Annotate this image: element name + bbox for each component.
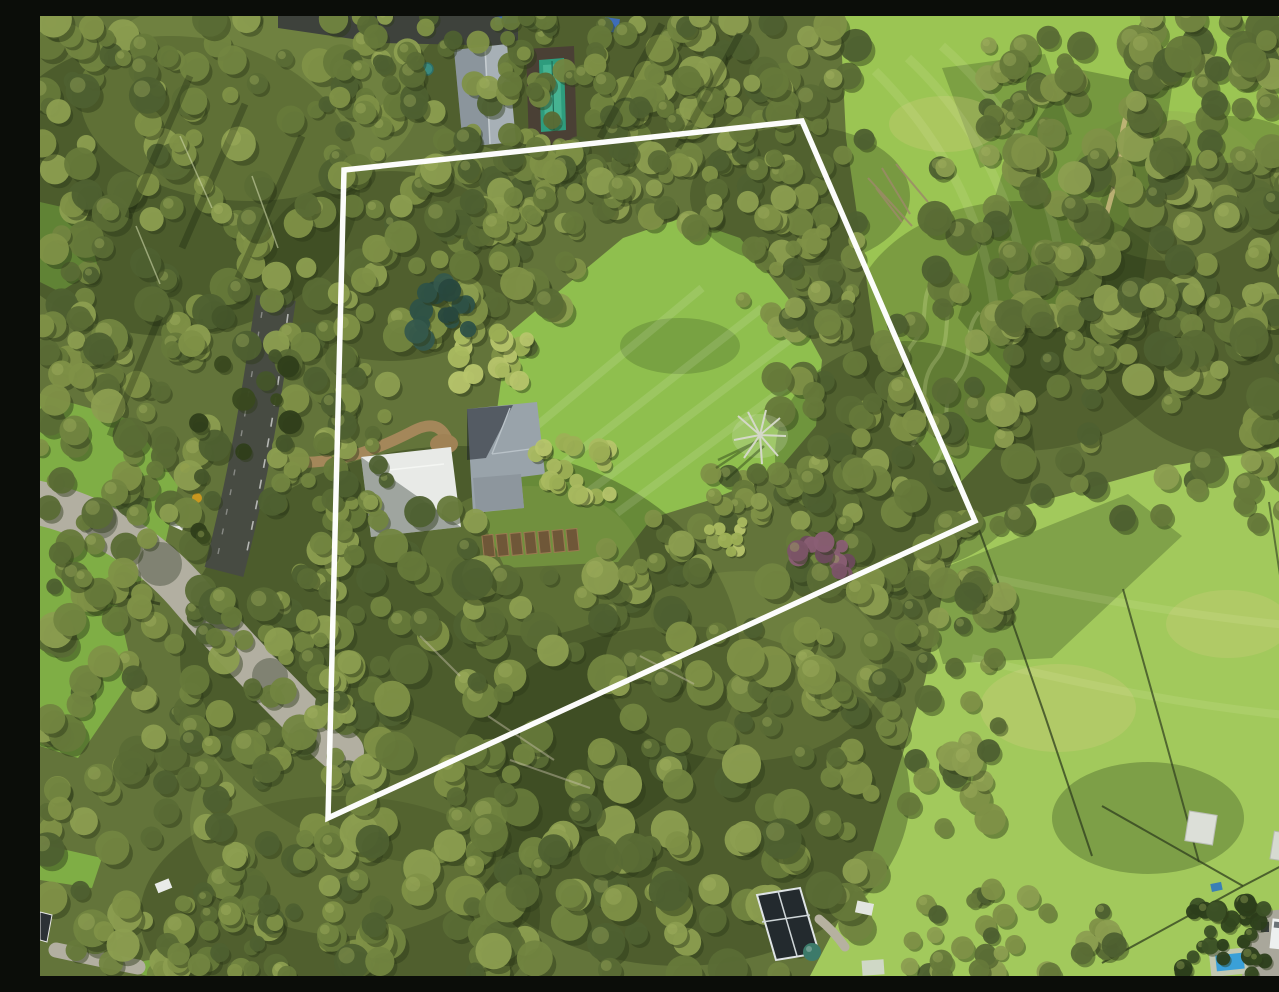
trees-bottom-midright-highlight bbox=[905, 601, 913, 609]
trees-bottom-left-corner bbox=[285, 903, 302, 920]
trees-interior-left-strip-highlight bbox=[324, 395, 334, 405]
trees-road-overhang bbox=[214, 356, 231, 373]
trees-bottom-midright bbox=[868, 668, 898, 698]
trees-bottom-right bbox=[904, 932, 922, 950]
trees-right-band-upper bbox=[1115, 176, 1144, 205]
trees-midright-shrubs bbox=[807, 435, 829, 457]
trees-top-right-corner bbox=[1149, 138, 1186, 175]
trees-right-band-lower bbox=[1241, 450, 1262, 471]
trees-interior-topband bbox=[566, 183, 584, 201]
trees-left-mid-west bbox=[126, 504, 147, 525]
trees-right-band-upper-highlight bbox=[981, 147, 991, 157]
trees-left-top-highlight bbox=[214, 205, 223, 214]
garden-bed bbox=[538, 530, 551, 553]
trees-bottom-forest-highlight bbox=[667, 924, 678, 935]
trees-road-overhang bbox=[196, 529, 211, 544]
trees-bottom-midright bbox=[895, 620, 919, 644]
trees-top-right-corner bbox=[1201, 90, 1228, 117]
trees-bottom-forest bbox=[665, 831, 689, 855]
trees-right-band-upper bbox=[1035, 243, 1054, 262]
trees-bottom-forest bbox=[517, 940, 553, 976]
trees-interior-topband-highlight bbox=[536, 189, 547, 200]
trees-midright-shrubs bbox=[888, 377, 914, 403]
trees-bottom-forest-highlight bbox=[812, 564, 829, 581]
hedge-bottom-right bbox=[1187, 950, 1200, 963]
trees-bottom-forest-west bbox=[463, 509, 488, 534]
trees-midright-shrubs bbox=[802, 397, 824, 419]
hedge-bottom-right-highlight bbox=[1251, 954, 1257, 960]
trees-bottom-midright-highlight bbox=[819, 813, 831, 825]
lawn-round-tree bbox=[751, 493, 768, 510]
trees-right-band-upper-highlight bbox=[1090, 150, 1099, 159]
trees-right-band-lower-highlight bbox=[1237, 475, 1250, 488]
hedge-bottom-right bbox=[1217, 939, 1229, 951]
trees-right-band-upper bbox=[1019, 176, 1048, 205]
lime-trees-by-house bbox=[535, 439, 552, 456]
trees-midright-shrubs-highlight bbox=[839, 517, 846, 524]
trees-bottom-midright bbox=[954, 582, 983, 611]
trees-left-mid-west bbox=[49, 542, 72, 565]
trees-left-top bbox=[247, 73, 268, 94]
hedge-bottom-right bbox=[1206, 902, 1226, 922]
trees-left-bottom-highlight bbox=[183, 732, 194, 743]
trees-road-light-overhang bbox=[304, 705, 328, 729]
trees-bottom-forest-highlight bbox=[592, 927, 609, 944]
trees-left-bottom bbox=[296, 830, 314, 848]
trees-interior-topband bbox=[648, 150, 670, 172]
trees-top-right-strip bbox=[666, 113, 683, 130]
trees-road-overhang-highlight bbox=[198, 531, 205, 538]
trees-midright-shrubs bbox=[762, 362, 792, 392]
trees-bottom-midright-highlight bbox=[918, 654, 927, 663]
trees-right-band-lower bbox=[1040, 352, 1059, 371]
trees-top-right-corner bbox=[1232, 98, 1253, 119]
trees-left-bottom bbox=[252, 754, 281, 783]
trees-interior-topband bbox=[608, 175, 633, 200]
trees-bottom-forest-west bbox=[356, 825, 390, 859]
trees-left-top bbox=[296, 258, 316, 278]
trees-interior-topleft bbox=[365, 200, 384, 219]
trees-left-top bbox=[260, 288, 284, 312]
trees-bottom-forest bbox=[452, 559, 493, 600]
trees-left-mid-west bbox=[68, 363, 94, 389]
banana-plants bbox=[726, 546, 737, 557]
trees-bottom-right-highlight bbox=[933, 952, 944, 963]
trees-interior-topleft bbox=[489, 252, 508, 271]
trees-top-right-strip bbox=[672, 66, 701, 95]
trees-left-mid-west bbox=[82, 497, 114, 529]
trees-left-bottom bbox=[107, 929, 140, 962]
trees-right-band-lower bbox=[1003, 344, 1024, 365]
trees-right-band-upper bbox=[1058, 161, 1092, 195]
trees-left-top bbox=[101, 203, 119, 221]
trees-left-bottom-highlight bbox=[167, 916, 181, 930]
trees-bottom-forest-highlight bbox=[605, 888, 622, 905]
trees-left-bottom bbox=[113, 751, 147, 785]
trees-bottom-forest-highlight bbox=[795, 747, 805, 757]
trees-bottom-forest bbox=[506, 874, 540, 908]
trees-midright-shrubs bbox=[842, 458, 873, 489]
trees-midright-shrubs-highlight bbox=[802, 471, 814, 483]
trees-top-clump bbox=[1054, 62, 1083, 91]
trees-bottom-midright-highlight bbox=[956, 619, 964, 627]
trees-bottom-left-corner bbox=[199, 921, 219, 941]
aerial-photo-canvas bbox=[40, 16, 1279, 976]
trees-bottom-midright bbox=[990, 717, 1007, 734]
trees-left-mid-east bbox=[301, 473, 316, 488]
trees-bottom-forest bbox=[797, 656, 836, 695]
trees-top-mid bbox=[444, 31, 463, 50]
trees-bottom-forest-mid bbox=[633, 559, 648, 574]
trees-top-mid-highlight bbox=[404, 94, 417, 107]
trees-left-top bbox=[129, 77, 166, 114]
trees-right-band-lower bbox=[1186, 479, 1207, 500]
trees-top-mid bbox=[370, 147, 385, 162]
trees-left-bottom bbox=[180, 730, 204, 754]
trees-left-bottom bbox=[112, 890, 140, 918]
trees-bottom-forest-west-highlight bbox=[406, 877, 421, 892]
trees-left-mid-east bbox=[303, 367, 328, 392]
trees-right-band-lower-highlight bbox=[1008, 507, 1021, 520]
trees-bottom-forest-highlight bbox=[534, 859, 543, 868]
trees-left-bottom bbox=[122, 665, 146, 689]
trees-bottom-midright-highlight bbox=[849, 580, 861, 592]
trees-bottom-forest-highlight bbox=[601, 960, 612, 971]
trees-bottom-forest bbox=[569, 801, 590, 822]
trees-bottom-forest-west bbox=[389, 645, 429, 685]
lime-trees-by-house bbox=[589, 442, 610, 463]
trees-left-mid-west bbox=[137, 528, 158, 549]
trees-interior-left-strip bbox=[375, 372, 400, 397]
trees-interior-left-strip bbox=[365, 438, 379, 452]
trees-bottom-midright bbox=[903, 599, 921, 617]
trees-bottom-forest bbox=[759, 715, 781, 737]
trees-interior-right-band bbox=[769, 262, 783, 276]
garden-bed bbox=[510, 532, 523, 555]
trees-bottom-left-corner bbox=[218, 902, 241, 925]
trees-top-right-strip-highlight bbox=[668, 115, 676, 123]
trees-top-clump bbox=[1037, 26, 1060, 49]
trees-interior-topband-highlight bbox=[612, 178, 623, 189]
trees-left-top-highlight bbox=[94, 238, 104, 248]
trees-bottom-right bbox=[1102, 932, 1127, 957]
trees-interior-right-band-highlight bbox=[749, 161, 759, 171]
trees-right-band-upper bbox=[971, 222, 992, 243]
banana-plants-highlight bbox=[720, 534, 727, 541]
trees-interior-right-band bbox=[736, 292, 751, 307]
trees-road-overhang bbox=[189, 413, 208, 432]
trees-left-top bbox=[218, 45, 247, 74]
trees-bottom-forest-highlight bbox=[766, 823, 784, 841]
trees-right-band-upper bbox=[978, 145, 999, 166]
trees-interior-left-strip bbox=[369, 455, 388, 474]
trees-top-right-strip-highlight bbox=[798, 88, 813, 103]
trees-bottom-forest bbox=[579, 836, 619, 876]
trees-interior-left-strip-highlight bbox=[367, 439, 374, 446]
trees-left-mid-east bbox=[271, 473, 290, 492]
trees-top-right-strip-highlight bbox=[826, 71, 835, 80]
trees-top-right-corner-highlight bbox=[1197, 77, 1208, 88]
trees-top-right-corner bbox=[1204, 56, 1229, 81]
trees-right-band-upper bbox=[1062, 195, 1087, 220]
trees-bottom-forest-west bbox=[397, 551, 427, 581]
trees-bottom-forest-highlight bbox=[702, 877, 716, 891]
trees-left-bottom bbox=[53, 603, 86, 636]
trees-bottom-forest-mid-highlight bbox=[649, 555, 658, 564]
trees-top-right-strip bbox=[758, 67, 789, 98]
trees-bottom-forest bbox=[588, 738, 615, 765]
trees-top-right-corner-highlight bbox=[1138, 65, 1153, 80]
trees-bottom-forest bbox=[464, 856, 484, 876]
trees-bottom-forest-west bbox=[356, 563, 386, 593]
trees-top-mid-highlight bbox=[355, 103, 366, 114]
trees-top-right-strip bbox=[787, 45, 808, 66]
trees-bottom-forest-west bbox=[370, 656, 390, 676]
trees-top-right-corner bbox=[1256, 30, 1277, 51]
trees-left-bottom-highlight bbox=[203, 908, 211, 916]
trees-right-band-upper bbox=[1165, 245, 1196, 276]
trees-midright-shrubs bbox=[905, 570, 931, 596]
trees-interior-topband-highlight bbox=[486, 216, 497, 227]
trees-bottom-left-corner bbox=[243, 896, 261, 914]
trees-interior-topband bbox=[707, 194, 723, 210]
trees-bottom-forest bbox=[792, 745, 814, 767]
trees-pool-surround-highlight bbox=[576, 67, 585, 76]
trees-bottom-forest bbox=[761, 818, 802, 859]
trees-bottom-left-corner bbox=[258, 895, 278, 915]
trees-left-mid-west bbox=[66, 306, 91, 331]
trees-bottom-forest bbox=[588, 604, 618, 634]
trees-bottom-right bbox=[1038, 903, 1056, 921]
trees-pool-surround bbox=[585, 109, 603, 127]
trees-bottom-forest bbox=[587, 923, 625, 961]
trees-interior-left-strip bbox=[344, 545, 365, 566]
trees-bottom-forest-highlight bbox=[644, 741, 652, 749]
trees-bottom-midright bbox=[815, 810, 841, 836]
trees-bottom-forest bbox=[494, 783, 516, 805]
trees-interior-right-band bbox=[771, 185, 797, 211]
trees-right-band-lower bbox=[1094, 285, 1121, 312]
trees-right-band-lower-highlight bbox=[1195, 452, 1211, 468]
garden-bed bbox=[524, 531, 537, 554]
trees-top-right-strip bbox=[629, 97, 651, 119]
trees-right-band-upper bbox=[1054, 243, 1084, 273]
trees-left-mid-west-highlight bbox=[63, 419, 76, 432]
trees-right-band-lower bbox=[1205, 294, 1231, 320]
trees-bottom-forest bbox=[641, 739, 660, 758]
trees-bottom-forest-west bbox=[457, 538, 478, 559]
trees-left-top bbox=[277, 106, 305, 134]
trees-right-band-upper-highlight bbox=[1177, 215, 1190, 228]
trees-interior-topband bbox=[561, 211, 584, 234]
trees-top-right-strip-highlight bbox=[596, 74, 606, 84]
trees-right-band-lower bbox=[1230, 318, 1269, 357]
hedge-bottom-right-highlight bbox=[1246, 929, 1252, 935]
trees-right-band-lower bbox=[986, 393, 1020, 427]
trees-bottom-forest bbox=[537, 635, 569, 667]
trees-left-top-highlight bbox=[250, 75, 260, 85]
trees-interior-right-band bbox=[783, 258, 803, 278]
trees-right-band-lower-highlight bbox=[1043, 354, 1052, 363]
trees-right-band-upper-highlight bbox=[1065, 198, 1076, 209]
trees-top-mid bbox=[335, 121, 353, 139]
trees-bottom-forest bbox=[729, 821, 761, 853]
trees-midright-shrubs bbox=[766, 462, 789, 485]
trees-left-bottom-highlight bbox=[302, 650, 313, 661]
trees-right-band-lower-highlight bbox=[997, 430, 1006, 439]
trees-left-bottom bbox=[293, 848, 316, 871]
trees-bottom-forest-west bbox=[347, 869, 368, 890]
trees-top-mid bbox=[406, 52, 424, 70]
house-extension-roof bbox=[473, 474, 524, 512]
trees-bottom-forest bbox=[754, 563, 790, 599]
trees-interior-topband bbox=[737, 191, 759, 213]
trees-top-mid bbox=[417, 19, 435, 37]
trees-bottom-right bbox=[951, 936, 974, 959]
trees-interior-right-band bbox=[766, 150, 784, 168]
trees-bottom-right bbox=[927, 927, 943, 943]
trees-bottom-midright bbox=[960, 691, 981, 712]
trees-right-band-upper bbox=[1173, 212, 1203, 242]
trees-interior-right-band bbox=[746, 158, 768, 180]
trees-left-bottom-highlight bbox=[88, 767, 101, 780]
trees-left-top bbox=[83, 267, 99, 283]
trees-right-band-upper-highlight bbox=[1217, 205, 1229, 217]
trees-left-mid-west bbox=[67, 331, 85, 349]
lime-tree-upper bbox=[448, 346, 470, 368]
hedge-bottom-right-highlight bbox=[1176, 961, 1184, 969]
dome-shelter bbox=[803, 943, 821, 961]
trees-pool-surround bbox=[497, 71, 522, 96]
trees-right-band-upper bbox=[932, 298, 952, 318]
trees-bottom-midright bbox=[934, 818, 953, 837]
trees-top-clump bbox=[1012, 99, 1033, 120]
trees-left-bottom bbox=[84, 764, 113, 793]
trees-left-mid-west bbox=[178, 330, 205, 357]
banana-plants bbox=[730, 533, 743, 546]
trees-interior-right-band bbox=[833, 146, 852, 165]
banana-plants bbox=[737, 517, 747, 527]
trees-road-light-overhang bbox=[206, 628, 224, 646]
trees-road-light-overhang bbox=[243, 678, 261, 696]
trees-left-bottom-highlight bbox=[258, 722, 271, 735]
trees-interior-right-band bbox=[785, 297, 806, 318]
trees-bottom-forest-mid bbox=[647, 553, 666, 572]
trees-left-top-highlight bbox=[133, 37, 146, 50]
hedge-bottom-right-highlight bbox=[1199, 904, 1207, 912]
trees-bottom-left-corner-highlight bbox=[199, 892, 206, 899]
trees-left-mid-west bbox=[74, 569, 92, 587]
trees-bottom-forest-west-highlight bbox=[350, 871, 360, 881]
banana-plants-highlight bbox=[732, 534, 738, 540]
trees-bottom-forest bbox=[843, 859, 868, 884]
trees-top-right-strip bbox=[743, 75, 760, 92]
trees-bottom-midright bbox=[915, 685, 942, 712]
trees-road-overhang bbox=[232, 388, 255, 411]
trees-top-right-corner bbox=[1165, 36, 1202, 73]
trees-right-band-lower bbox=[1182, 283, 1204, 305]
trees-top-right-corner bbox=[1199, 150, 1218, 169]
trees-bottom-forest-west bbox=[410, 608, 440, 638]
trees-interior-right-band bbox=[854, 129, 875, 150]
trees-bottom-midright bbox=[977, 739, 1000, 762]
trees-interior-topleft bbox=[555, 251, 575, 271]
trees-bottom-forest-west-highlight bbox=[451, 810, 462, 821]
lime-tree-upper bbox=[509, 371, 529, 391]
trees-bottom-forest-west bbox=[322, 901, 343, 922]
trees-midright-shrubs bbox=[814, 309, 841, 336]
trees-bottom-right bbox=[1095, 904, 1111, 920]
trees-left-top-highlight bbox=[117, 51, 124, 58]
trees-bottom-forest-mid bbox=[668, 531, 694, 557]
trees-right-band-upper-highlight bbox=[1248, 247, 1259, 258]
trees-top-mid-highlight bbox=[332, 151, 340, 159]
trees-left-top bbox=[232, 331, 262, 361]
trees-left-mid-west bbox=[108, 558, 138, 588]
trees-left-top bbox=[276, 49, 294, 67]
trees-midright-shrubs bbox=[798, 468, 824, 494]
trees-bottom-forest bbox=[707, 721, 737, 751]
trees-top-mid-highlight bbox=[479, 78, 490, 89]
trees-left-bottom bbox=[127, 594, 152, 619]
trees-bottom-midright bbox=[954, 617, 972, 635]
trees-left-mid-west bbox=[146, 461, 163, 478]
trees-interior-topband bbox=[646, 180, 663, 197]
trees-left-top bbox=[92, 236, 114, 258]
trees-bottom-forest bbox=[666, 622, 697, 653]
trees-bottom-right bbox=[981, 879, 1003, 901]
trees-bottom-forest bbox=[470, 814, 508, 852]
trees-bottom-forest-west-highlight bbox=[325, 903, 335, 913]
trees-bottom-forest-mid bbox=[683, 558, 710, 585]
trees-top-mid bbox=[375, 55, 395, 75]
trees-midright-shrubs-highlight bbox=[938, 514, 952, 528]
trees-interior-topband bbox=[681, 214, 709, 242]
trees-left-bottom bbox=[48, 797, 72, 821]
trees-bottom-right-highlight bbox=[1097, 905, 1104, 912]
trees-interior-topband bbox=[533, 186, 556, 209]
trees-interior-topleft bbox=[356, 303, 374, 321]
trees-left-top-highlight bbox=[85, 269, 92, 276]
lime-tree-upper bbox=[463, 364, 483, 384]
trees-bottom-forest bbox=[613, 833, 653, 873]
trees-left-mid-west bbox=[46, 579, 62, 595]
trees-bottom-forest-west bbox=[365, 947, 394, 976]
lime-trees-by-house-highlight bbox=[537, 441, 545, 449]
trees-road-overhang bbox=[276, 435, 294, 453]
trees-top-mid bbox=[467, 31, 490, 54]
trees-interior-right-band bbox=[816, 224, 831, 239]
trees-left-bottom bbox=[70, 807, 98, 835]
trees-bottom-forest-west bbox=[370, 596, 391, 617]
trees-interior-topleft bbox=[533, 288, 563, 318]
trees-bottom-left-corner bbox=[175, 895, 191, 911]
trees-bottom-forest-west bbox=[374, 681, 410, 717]
trees-left-bottom-highlight bbox=[236, 733, 252, 749]
trees-bottom-midright bbox=[827, 748, 846, 767]
trees-left-bottom-highlight bbox=[251, 591, 266, 606]
trees-bottom-left-corner bbox=[210, 943, 229, 962]
trees-left-mid-west-highlight bbox=[139, 405, 148, 414]
trees-top-mid-highlight bbox=[353, 62, 362, 71]
trees-bottom-forest-west bbox=[320, 833, 342, 855]
trees-bottom-forest bbox=[727, 639, 765, 677]
trees-bottom-midright bbox=[913, 768, 937, 792]
purple-flowering-bush bbox=[787, 540, 808, 561]
trees-left-top-highlight bbox=[230, 281, 240, 291]
trees-left-bottom bbox=[67, 691, 94, 718]
trees-top-right-strip bbox=[613, 22, 637, 46]
